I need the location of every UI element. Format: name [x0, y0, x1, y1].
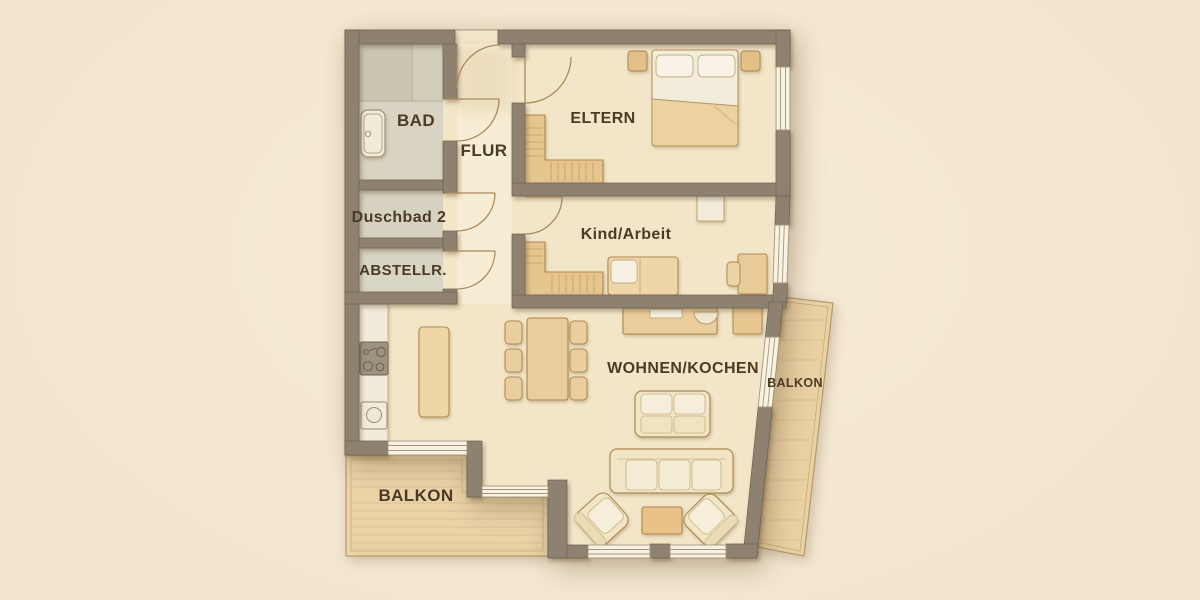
shower-area: [359, 44, 412, 101]
wall: [776, 30, 790, 67]
window: [588, 545, 650, 558]
window: [773, 225, 789, 283]
nightstand: [628, 51, 647, 71]
loveseat: [635, 391, 710, 437]
wall: [512, 103, 525, 183]
room-label-duschbad: Duschbad 2: [352, 209, 447, 226]
laptop: [650, 309, 682, 318]
sofa: [610, 449, 733, 493]
room-label-wohnen-kochen: WOHNEN/KOCHEN: [607, 360, 759, 377]
cushion: [692, 460, 721, 490]
wall: [345, 441, 388, 455]
cushion: [659, 460, 690, 490]
window: [776, 67, 790, 130]
room-label-kind-arbeit: Kind/Arbeit: [581, 226, 672, 243]
cushion: [626, 460, 657, 490]
bathtub-icon: [361, 110, 385, 157]
pillow: [656, 55, 693, 77]
window: [670, 545, 726, 558]
kitchen-island: [419, 327, 449, 417]
desk: [738, 254, 767, 294]
wall: [512, 183, 790, 196]
wall: [345, 292, 457, 304]
wall: [359, 238, 443, 248]
wall: [512, 234, 525, 295]
wall: [345, 30, 359, 455]
cushion: [641, 394, 672, 414]
wall: [548, 480, 567, 558]
desk-chair: [727, 262, 740, 286]
dining-chair: [505, 377, 522, 400]
shower-area-2: [412, 44, 443, 101]
wall: [443, 44, 457, 99]
room-label-eltern: ELTERN: [570, 110, 635, 127]
floor-plan-image: BAD Duschbad 2 ABSTELLR. FLUR ELTERN Kin…: [0, 0, 1200, 600]
wall: [443, 141, 457, 193]
wall: [359, 180, 443, 190]
dining-chair: [570, 321, 587, 344]
room-label-abstellraum: ABSTELLR.: [359, 262, 447, 279]
wall: [443, 231, 457, 251]
room-label-balkon-sued: BALKON: [378, 486, 453, 505]
sideboard-desk: [623, 308, 718, 334]
wall: [775, 196, 790, 225]
wall: [773, 283, 788, 302]
nightstand: [741, 51, 760, 71]
room-label-balkon-ost: BALKON: [767, 376, 823, 390]
wall: [467, 441, 482, 497]
wall: [650, 544, 670, 558]
cushion: [674, 394, 705, 414]
sink-icon: [361, 402, 387, 429]
wall: [512, 44, 525, 57]
coffee-table: [642, 507, 682, 534]
room-label-flur: FLUR: [461, 141, 508, 160]
blanket: [652, 99, 738, 146]
window: [482, 486, 548, 497]
wall: [345, 30, 455, 44]
wall: [512, 295, 786, 308]
room-label-bad: BAD: [397, 111, 435, 130]
wall: [726, 544, 758, 558]
balcony-door-window: [388, 441, 467, 455]
wall: [776, 130, 790, 196]
cushion: [641, 416, 672, 433]
dining-table: [527, 318, 568, 400]
wall: [498, 30, 790, 44]
cooktop-icon: [360, 342, 388, 375]
single-bed: [608, 257, 678, 295]
dining-chair: [570, 349, 587, 372]
pillow: [698, 55, 735, 77]
dining-chair: [505, 321, 522, 344]
side-table: [697, 196, 724, 221]
cushion: [674, 416, 705, 433]
dining-chair: [570, 377, 587, 400]
flur-entry-shadow: [457, 46, 512, 112]
double-bed: [652, 50, 738, 146]
dining-chair: [505, 349, 522, 372]
pillow: [611, 260, 637, 283]
